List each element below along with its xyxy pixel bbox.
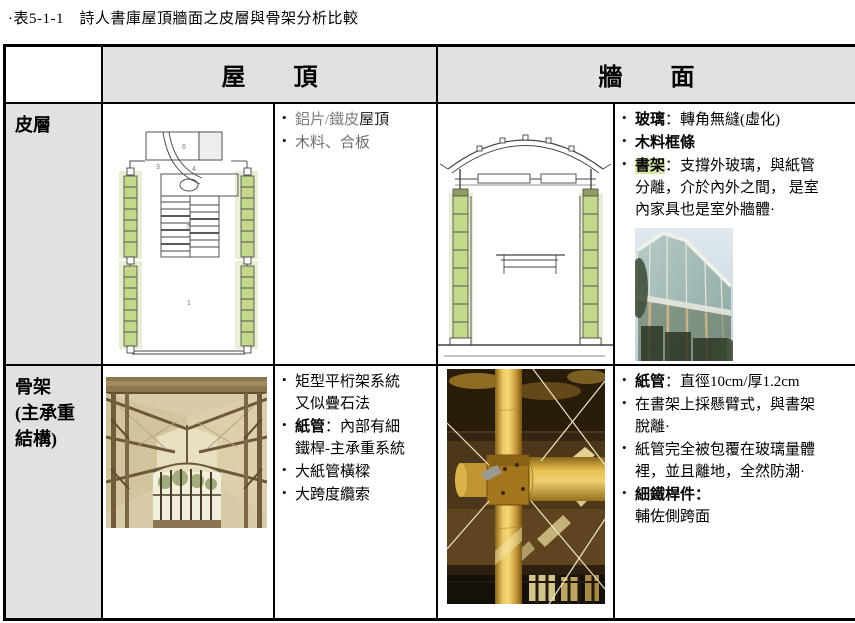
bullet-icon: •	[622, 393, 627, 412]
roof-plan-drawing: 6 3 4 7 1	[104, 105, 273, 364]
note-text: 輔佐側跨面	[635, 509, 710, 525]
note-text: 大紙管橫樑	[295, 464, 370, 480]
cell-skin-wall-notes: •玻璃：轉角無縫(虛化) •木料框條 •書架：支撐外玻璃，與紙管 分離，介於內外…	[615, 104, 855, 366]
header-roof-label: 屋 頂	[222, 57, 318, 92]
header-roof: 屋 頂	[103, 47, 438, 104]
note-text: 矩型平桁架系統 又似疊石法	[295, 374, 400, 412]
note-text: 屋頂	[359, 112, 389, 128]
header-wall: 牆 面	[438, 47, 855, 104]
header-blank-cell	[6, 47, 103, 104]
note-item: •紙管完全被包覆在玻璃量體 裡，並且離地，全然防潮·	[622, 439, 853, 483]
note-item: •紙管：直徑10cm/厚1.2cm	[622, 371, 853, 393]
table-caption: ·表5-1-1 詩人書庫屋頂牆面之皮層與骨架分析比較	[8, 7, 359, 28]
note-text: 紙管	[295, 419, 325, 435]
bullet-icon: •	[622, 438, 627, 457]
glass-facade-photo	[635, 228, 733, 361]
bullet-icon: •	[282, 415, 287, 434]
note-text: 細鐵桿件：	[635, 487, 710, 503]
cell-frame-wall-photo	[438, 366, 615, 618]
note-text: 木料、合板	[295, 135, 370, 151]
plan-label: 7	[186, 224, 190, 231]
bullet-icon: •	[282, 460, 287, 479]
comparison-table: 屋 頂 牆 面 皮層	[3, 44, 855, 621]
note-text: 紙管	[635, 374, 665, 390]
note-item: •細鐵桿件： 輔佐側跨面	[622, 484, 853, 528]
cell-skin-roof-drawing: 6 3 4 7 1	[103, 104, 275, 366]
bullet-icon: •	[282, 108, 287, 127]
note-text: 紙管完全被包覆在玻璃量體 裡，並且離地，全然防潮·	[635, 442, 815, 480]
note-item: •矩型平桁架系統 又似疊石法	[282, 371, 434, 415]
paper-tube-joint-photo	[447, 369, 605, 604]
note-item: •在書架上採懸臂式，與書架 脫離·	[622, 394, 853, 438]
note-text: 木料框條	[635, 135, 695, 151]
row-label-skin: 皮層	[6, 104, 103, 366]
header-wall-label: 牆 面	[599, 57, 695, 92]
bullet-icon: •	[282, 483, 287, 502]
note-item: •玻璃：轉角無縫(虛化)	[622, 109, 853, 131]
cell-skin-wall-drawing	[438, 104, 615, 366]
bullet-icon: •	[622, 131, 627, 150]
roof-truss-interior-photo	[106, 377, 267, 528]
plan-label: 6	[182, 144, 186, 151]
note-text: 在書架上採懸臂式，與書架 脫離·	[635, 397, 815, 435]
wall-section-drawing	[438, 105, 613, 364]
plan-label: 1	[187, 300, 191, 307]
note-text: 鋁片/鐵皮	[295, 112, 359, 128]
note-text: 玻璃	[635, 112, 665, 128]
note-item: •鋁片/鐵皮屋頂	[282, 109, 434, 131]
cell-frame-roof-photo	[103, 366, 275, 618]
plan-label: 4	[192, 166, 196, 173]
bullet-icon: •	[282, 370, 287, 389]
note-text: ：轉角無縫(虛化)	[665, 112, 780, 128]
note-text: 大跨度纜索	[295, 487, 370, 503]
cell-frame-roof-notes: •矩型平桁架系統 又似疊石法 •紙管：內部有細 鐵桿-主承重系統 •大紙管橫樑 …	[275, 366, 438, 618]
note-item: •木料、合板	[282, 132, 434, 154]
cell-skin-roof-notes: •鋁片/鐵皮屋頂 •木料、合板	[275, 104, 438, 366]
note-item: •大跨度纜索	[282, 484, 434, 506]
note-text: ：直徑10cm/厚1.2cm	[665, 374, 800, 390]
row-label-frame: 骨架 (主承重 結構)	[6, 366, 103, 618]
bullet-icon: •	[622, 108, 627, 127]
plan-label: 3	[156, 164, 160, 171]
note-item: •木料框條	[622, 132, 853, 154]
bullet-icon: •	[622, 483, 627, 502]
note-text-highlighted: 書架	[635, 158, 665, 174]
note-item: •大紙管橫樑	[282, 461, 434, 483]
bullet-icon: •	[622, 370, 627, 389]
bullet-icon: •	[282, 131, 287, 150]
note-item: •紙管：內部有細 鐵桿-主承重系統	[282, 416, 434, 460]
bullet-icon: •	[622, 154, 627, 173]
note-item: •書架：支撐外玻璃，與紙管 分離，介於內外之間， 是室 內家具也是室外牆體·	[622, 155, 853, 221]
cell-frame-wall-notes: •紙管：直徑10cm/厚1.2cm •在書架上採懸臂式，與書架 脫離· •紙管完…	[615, 366, 855, 618]
